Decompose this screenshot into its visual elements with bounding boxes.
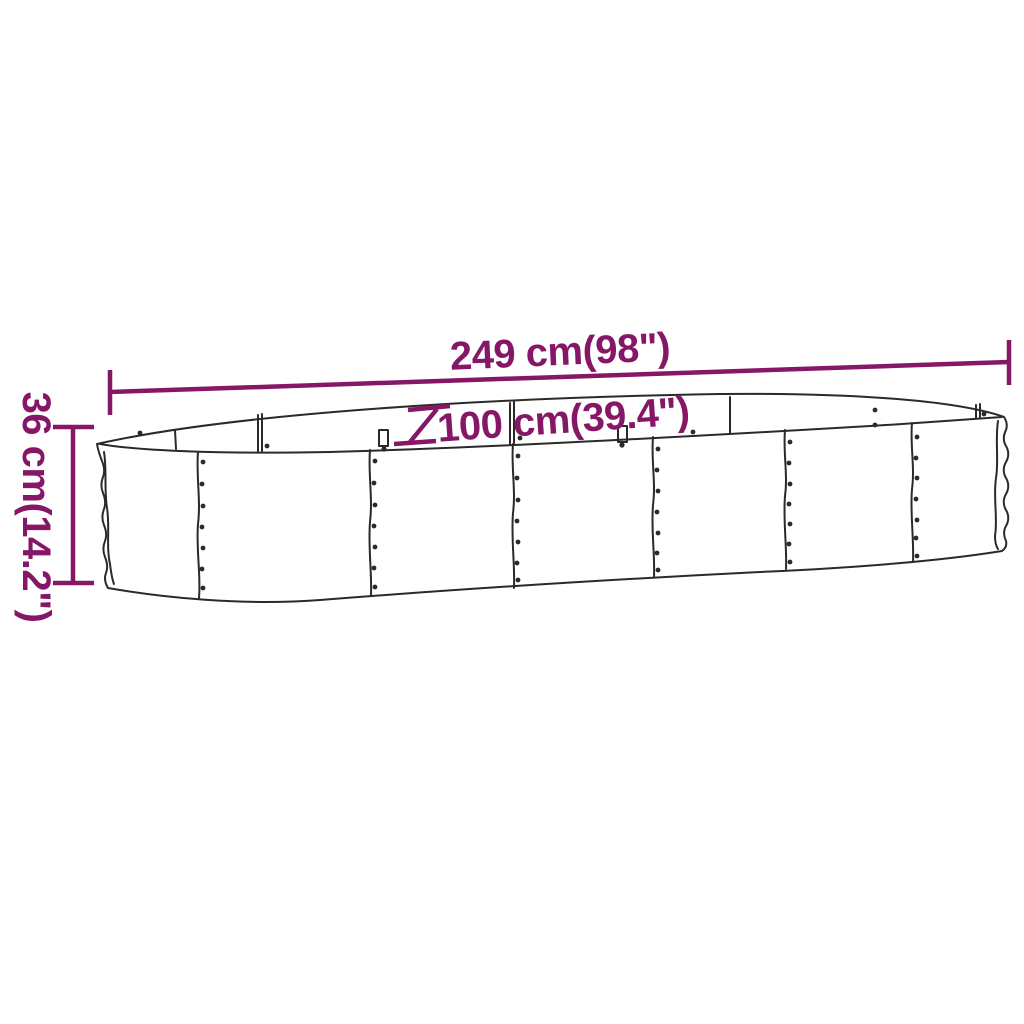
depth-anchor-mark: [379, 430, 388, 446]
dimension-lines: [53, 340, 1009, 583]
length-dimension-label: 249 cm(98"): [439, 327, 681, 377]
product-dimension-image: 249 cm(98") 100 cm(39.4") 36 cm(14.2"): [0, 0, 1024, 1024]
right-corrugation-line: [995, 421, 998, 549]
diagram-linework: [0, 0, 1024, 1024]
panel-seam: [652, 437, 654, 577]
height-dimension-line: [53, 427, 94, 583]
left-corrugation-line: [104, 452, 114, 584]
height-dimension-label: 36 cm(14.2"): [14, 382, 56, 632]
panel-seam: [911, 423, 913, 562]
panel-seam: [369, 450, 371, 596]
panel-seam: [784, 430, 786, 569]
panel-seam: [198, 452, 200, 598]
rim-seam: [175, 430, 176, 449]
panel-seam: [512, 444, 514, 588]
